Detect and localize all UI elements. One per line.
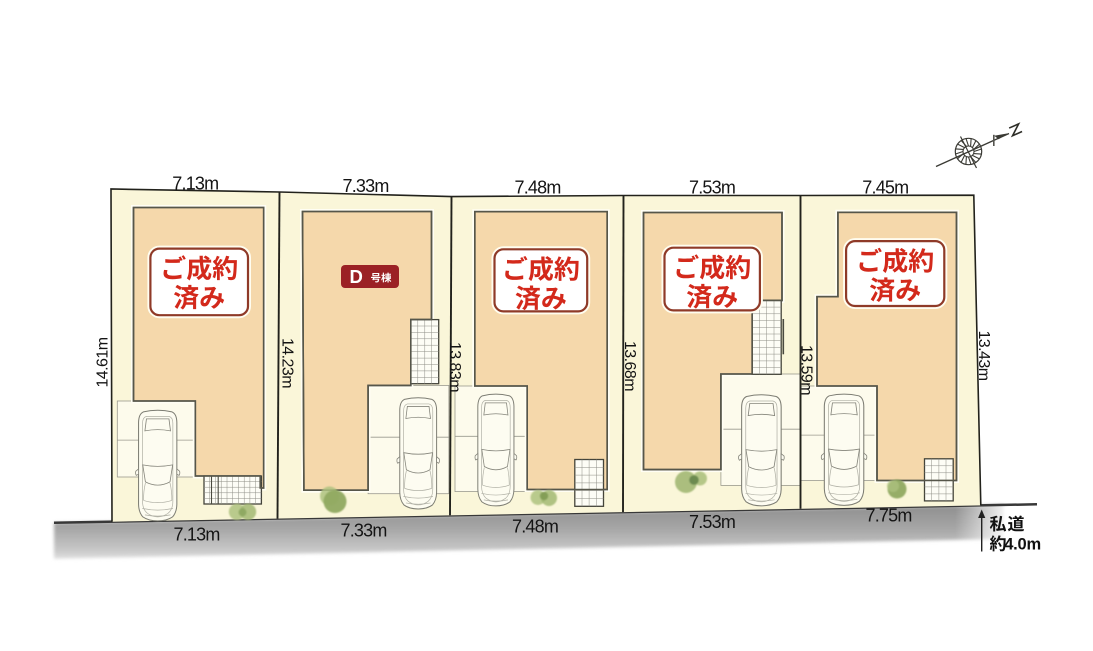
svg-text:7.13m: 7.13m [173,525,219,545]
svg-text:7.53m: 7.53m [689,178,735,198]
svg-text:7.33m: 7.33m [342,176,388,196]
svg-text:7.13m: 7.13m [172,174,218,194]
svg-text:7.53m: 7.53m [689,512,735,532]
svg-text:7.48m: 7.48m [514,177,560,197]
svg-text:7.75m: 7.75m [865,506,911,526]
svg-text:7.33m: 7.33m [340,521,386,541]
svg-text:7.48m: 7.48m [512,517,558,537]
svg-text:13.83m: 13.83m [446,342,463,392]
svg-text:D: D [350,266,363,287]
svg-text:7.45m: 7.45m [862,178,908,198]
svg-text:4.0m: 4.0m [1004,536,1041,554]
svg-text:13.59m: 13.59m [798,345,815,395]
svg-text:13.43m: 13.43m [975,330,992,380]
svg-text:13.68m: 13.68m [621,341,638,391]
svg-text:14.61m: 14.61m [95,337,112,387]
svg-text:14.23m: 14.23m [278,338,295,388]
